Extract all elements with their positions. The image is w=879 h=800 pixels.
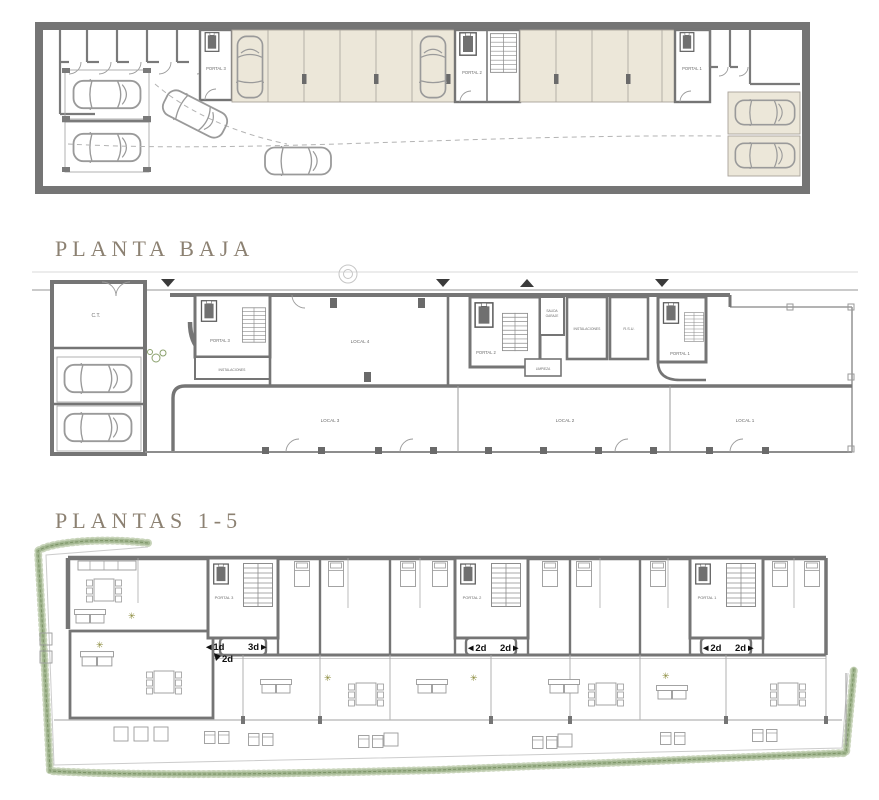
salida-label-line2: GARAJE: [546, 314, 559, 318]
sofa-icon: [657, 686, 688, 700]
bed-icon: [577, 562, 592, 587]
plantas-portal1-label: PORTAL 1: [698, 595, 718, 600]
elevator-icon: [696, 564, 711, 584]
sofa-icon: [261, 680, 292, 694]
salida-garaje-room: SALIDA GARAJE: [540, 297, 564, 335]
p1-unit-right-label: 2d►: [735, 643, 756, 654]
sun-symbol: ✳: [470, 673, 478, 683]
sun-symbol: ✳: [662, 671, 670, 681]
plantas-portal3-label: PORTAL 3: [215, 595, 235, 600]
stairs-icon: [243, 563, 273, 607]
bed-icon: [651, 562, 666, 587]
salida-label-line1: SALIDA: [546, 309, 558, 313]
dining-table-icon: [589, 683, 624, 706]
rsu-label: R.S.U.: [623, 327, 634, 331]
limpieza-label: LIMPIEZA: [536, 367, 551, 371]
baja-portal2-core: PORTAL 2: [470, 297, 540, 367]
local2-label: LOCAL 2: [556, 418, 575, 423]
floor-plans-sheet: PORTAL 3 PORTAL 2: [0, 0, 879, 800]
lounger-icon: [359, 736, 384, 748]
elevator-icon: [663, 303, 678, 324]
garage-portal3-core: PORTAL 3: [200, 30, 232, 100]
plant-icon: [148, 350, 167, 363]
elevator-icon: [475, 303, 493, 327]
bed-icon: [805, 562, 820, 587]
manhole-icon: [339, 265, 357, 283]
p2-unit-left-label: ◄2d: [466, 643, 487, 654]
garage-portal2-core: PORTAL 2: [455, 30, 520, 102]
baja-portal2-label: PORTAL 2: [476, 350, 496, 355]
garden-furniture: [205, 673, 847, 749]
sofa-icon: [75, 610, 106, 624]
elevator-icon: [680, 33, 694, 52]
balcony-furniture: ✳ ✳ ✳: [261, 671, 806, 706]
stairs-icon: [502, 313, 528, 351]
bed-icon: [401, 562, 416, 587]
parking-strip-right: [520, 30, 675, 102]
lounger-icon: [753, 730, 778, 742]
plantas-portal2-core: PORTAL 2: [455, 558, 528, 655]
elevator-icon: [461, 564, 476, 584]
p2-unit-right-label: 2d►: [500, 643, 521, 654]
plantas-1-5-title: PLANTAS 1-5: [55, 508, 242, 534]
plantas-portal3-core: PORTAL 3: [208, 558, 278, 655]
band-wall-corner: [173, 386, 185, 452]
local3-label: LOCAL 3: [321, 418, 340, 423]
plantas-portal2-label: PORTAL 2: [463, 595, 483, 600]
instalaciones-p3-label: INSTALACIONES: [219, 368, 247, 372]
garage-plan: PORTAL 3 PORTAL 2: [35, 22, 810, 194]
garage-portal2-label: PORTAL 2: [462, 70, 482, 75]
bed-icon: [543, 562, 558, 587]
garage-portal3-label: PORTAL 3: [206, 66, 226, 71]
bed-icon: [295, 562, 310, 587]
local1-columns: [787, 304, 854, 452]
local4-label: LOCAL 4: [351, 339, 370, 344]
baja-portal3-core: PORTAL 3 INSTALACIONES: [195, 295, 270, 379]
sun-symbol: ✳: [128, 611, 136, 621]
local1-label: LOCAL 1: [736, 418, 755, 423]
garage-portal1-core: PORTAL 1: [675, 30, 710, 102]
left-annex-block: C.T.: [52, 282, 145, 454]
planta-baja-title: PLANTA BAJA: [55, 236, 254, 262]
elevator-icon: [214, 564, 229, 584]
elevator-icon: [201, 301, 216, 322]
plantas-1-5-plan: ✳ ✳ PORTAL 3 PORTAL 2: [8, 533, 876, 785]
dining-table-icon: [349, 683, 384, 706]
lounger-icon: [205, 732, 230, 744]
lounger-icon: [533, 737, 558, 749]
ct-room-label: C.T.: [92, 313, 101, 319]
lounger-icon: [661, 733, 686, 745]
stairs-icon: [684, 312, 704, 341]
limpieza-room: LIMPIEZA: [525, 359, 561, 376]
stairs-icon: [726, 563, 756, 607]
elevator-icon: [205, 33, 219, 52]
stairs-icon: [491, 563, 521, 607]
lounger-icon: [249, 734, 274, 746]
entrance-arrows: [161, 279, 669, 287]
planta-baja-plan: C.T. PORTAL 3 INSTALACIONES LOCAL 4: [30, 262, 860, 462]
dining-table-icon: [87, 579, 122, 602]
instalaciones-label: INSTALACIONES: [574, 327, 602, 331]
instalaciones-room: INSTALACIONES: [567, 297, 607, 359]
garage-portal1-label: PORTAL 1: [682, 66, 702, 71]
dining-table-icon: [771, 683, 806, 706]
baja-portal1-core: PORTAL 1: [658, 297, 706, 380]
bed-icon: [329, 562, 344, 587]
p1-unit-left-label: ◄2d: [701, 643, 722, 654]
garden-table-icon: [384, 733, 398, 746]
parking-strip-left: [232, 30, 455, 102]
stairs-icon: [490, 33, 517, 73]
right-parking-bays: [728, 92, 800, 176]
unit-3d-label: 3d►: [248, 642, 269, 653]
unit-1d-label: ◄1d: [204, 642, 225, 653]
plantas-portal1-core: PORTAL 1: [690, 558, 763, 655]
local4-room: LOCAL 4: [270, 295, 448, 386]
bed-icon: [773, 562, 788, 587]
sun-symbol: ✳: [96, 640, 104, 650]
bed-icon: [433, 562, 448, 587]
balcony-dividers: [243, 655, 826, 720]
sofa-icon: [549, 680, 580, 694]
elevator-icon: [460, 33, 476, 55]
sofa-icon: [417, 680, 448, 694]
rsu-room: R.S.U.: [610, 297, 648, 359]
baja-portal1-label: PORTAL 1: [670, 351, 690, 356]
stairs-icon: [242, 307, 266, 342]
garden-table-icon: [558, 734, 572, 747]
baja-portal3-label: PORTAL 3: [210, 338, 230, 343]
sun-symbol: ✳: [324, 673, 332, 683]
unit-2d-label: 2d: [222, 654, 233, 665]
